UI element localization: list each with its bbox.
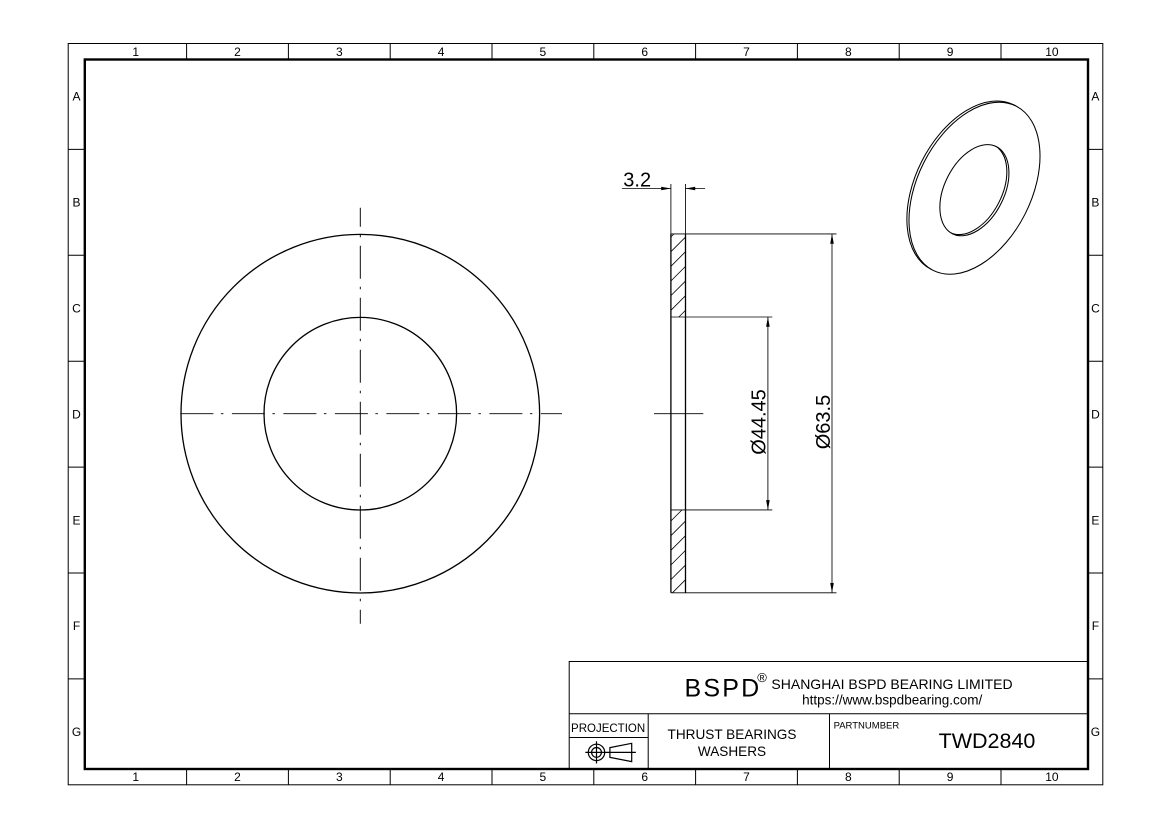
svg-text:3: 3 — [336, 45, 343, 59]
svg-text:A: A — [72, 90, 80, 104]
svg-text:7: 7 — [743, 45, 750, 59]
svg-text:1: 1 — [132, 770, 139, 784]
svg-text:F: F — [1092, 619, 1099, 633]
svg-text:9: 9 — [947, 45, 954, 59]
svg-text:TWD2840: TWD2840 — [939, 729, 1036, 753]
svg-text:D: D — [1091, 407, 1100, 421]
svg-text:C: C — [72, 302, 81, 316]
svg-text:®: ® — [757, 670, 767, 685]
svg-text:PARTNUMBER: PARTNUMBER — [834, 721, 900, 732]
svg-text:SHANGHAI BSPD BEARING LIMITED: SHANGHAI BSPD BEARING LIMITED — [771, 676, 1012, 692]
svg-text:PROJECTION: PROJECTION — [571, 723, 645, 735]
svg-text:A: A — [1091, 90, 1099, 104]
svg-text:D: D — [72, 407, 81, 421]
svg-text:7: 7 — [743, 770, 750, 784]
svg-text:G: G — [1091, 725, 1100, 739]
svg-text:B: B — [1091, 196, 1099, 210]
svg-text:1: 1 — [132, 45, 139, 59]
svg-text:10: 10 — [1045, 770, 1059, 784]
svg-text:8: 8 — [845, 770, 852, 784]
svg-text:https://www.bspdbearing.com/: https://www.bspdbearing.com/ — [802, 693, 982, 708]
svg-text:9: 9 — [947, 770, 954, 784]
svg-text:Ø63.5: Ø63.5 — [813, 395, 835, 449]
svg-text:E: E — [1091, 513, 1099, 527]
svg-text:C: C — [1091, 302, 1100, 316]
svg-text:3.2: 3.2 — [623, 170, 651, 192]
svg-text:WASHERS: WASHERS — [698, 744, 766, 759]
svg-text:8: 8 — [845, 45, 852, 59]
svg-text:G: G — [72, 725, 81, 739]
svg-text:10: 10 — [1045, 45, 1059, 59]
svg-text:3: 3 — [336, 770, 343, 784]
svg-text:6: 6 — [641, 770, 648, 784]
svg-text:F: F — [73, 619, 80, 633]
svg-text:BSPD: BSPD — [684, 675, 761, 703]
svg-text:E: E — [72, 513, 80, 527]
svg-text:4: 4 — [438, 770, 445, 784]
svg-text:6: 6 — [641, 45, 648, 59]
svg-text:Ø44.45: Ø44.45 — [749, 389, 771, 455]
svg-text:2: 2 — [234, 770, 241, 784]
svg-text:THRUST BEARINGS: THRUST BEARINGS — [668, 727, 797, 742]
svg-text:2: 2 — [234, 45, 241, 59]
svg-text:B: B — [72, 196, 80, 210]
svg-text:5: 5 — [540, 45, 547, 59]
svg-text:5: 5 — [540, 770, 547, 784]
svg-text:4: 4 — [438, 45, 445, 59]
